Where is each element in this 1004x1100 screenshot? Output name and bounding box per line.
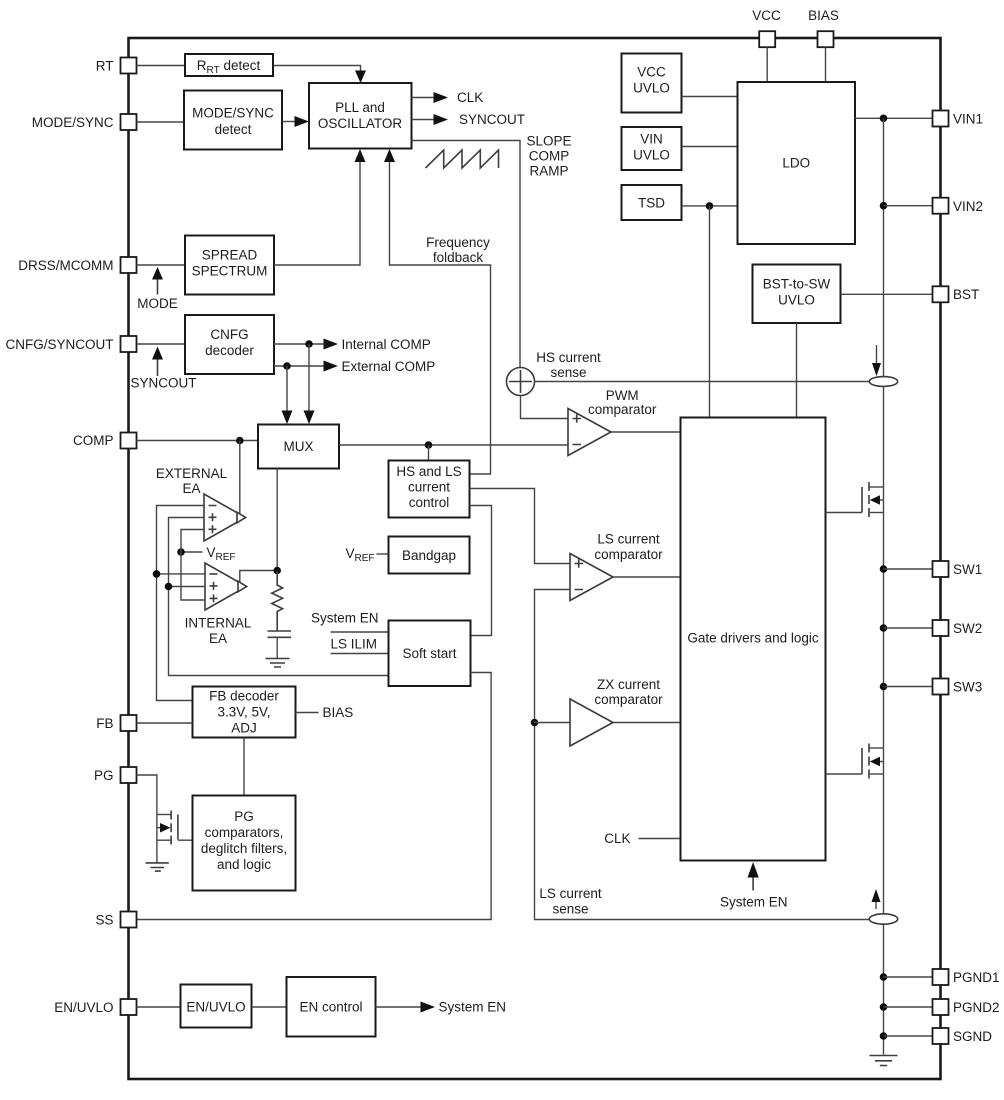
svg-text:PLL and: PLL and: [335, 100, 385, 115]
svg-text:detect: detect: [215, 122, 252, 137]
svg-text:and logic: and logic: [217, 857, 271, 872]
svg-text:BIAS: BIAS: [808, 8, 839, 23]
svg-text:COMP: COMP: [73, 433, 114, 448]
svg-text:ZX current: ZX current: [597, 677, 660, 692]
svg-text:External COMP: External COMP: [342, 359, 436, 374]
svg-text:Internal COMP: Internal COMP: [342, 337, 431, 352]
svg-text:Soft start: Soft start: [402, 646, 456, 661]
svg-text:SLOPE: SLOPE: [526, 134, 571, 149]
svg-text:3.3V, 5V,: 3.3V, 5V,: [217, 705, 270, 720]
svg-text:TSD: TSD: [638, 196, 665, 211]
svg-text:VIN: VIN: [640, 132, 663, 147]
svg-text:comparators,: comparators,: [205, 825, 284, 840]
svg-text:EN/UVLO: EN/UVLO: [54, 1000, 113, 1015]
svg-text:Bandgap: Bandgap: [402, 548, 456, 563]
svg-text:ADJ: ADJ: [231, 721, 257, 736]
svg-text:EXTERNAL: EXTERNAL: [156, 466, 228, 481]
svg-text:SYNCOUT: SYNCOUT: [459, 112, 525, 127]
svg-text:sense: sense: [552, 902, 588, 917]
svg-text:PGND2: PGND2: [953, 1000, 1000, 1015]
svg-text:INTERNAL: INTERNAL: [185, 616, 252, 631]
svg-text:SGND: SGND: [953, 1029, 992, 1044]
svg-text:HS and LS: HS and LS: [396, 464, 461, 479]
svg-text:sense: sense: [550, 365, 586, 380]
svg-text:UVLO: UVLO: [778, 293, 815, 308]
svg-text:decoder: decoder: [205, 343, 254, 358]
svg-text:VIN2: VIN2: [953, 199, 983, 214]
svg-text:RAMP: RAMP: [529, 164, 568, 179]
svg-text:PG: PG: [94, 768, 114, 783]
svg-text:UVLO: UVLO: [633, 148, 670, 163]
svg-text:LS current: LS current: [597, 532, 660, 547]
svg-text:Frequency: Frequency: [426, 235, 490, 250]
svg-text:LS current: LS current: [539, 886, 602, 901]
svg-text:HS current: HS current: [536, 350, 601, 365]
svg-text:current: current: [408, 480, 450, 495]
svg-text:SW2: SW2: [953, 621, 982, 636]
svg-text:PWM: PWM: [606, 388, 639, 403]
svg-text:VREF: VREF: [207, 545, 236, 563]
svg-text:RT: RT: [96, 59, 114, 74]
svg-text:BST-to-SW: BST-to-SW: [763, 277, 831, 292]
svg-text:System EN: System EN: [720, 895, 788, 910]
svg-text:LDO: LDO: [782, 156, 810, 171]
svg-text:LS ILIM: LS ILIM: [331, 637, 378, 652]
svg-text:BST: BST: [953, 287, 979, 302]
svg-text:System EN: System EN: [311, 611, 379, 626]
svg-text:comparator: comparator: [588, 402, 657, 417]
svg-text:VREF: VREF: [346, 546, 375, 564]
svg-text:FB: FB: [96, 716, 113, 731]
svg-text:PGND1: PGND1: [953, 970, 1000, 985]
svg-text:SW3: SW3: [953, 680, 982, 695]
svg-text:VCC: VCC: [637, 65, 666, 80]
svg-text:EN control: EN control: [299, 1000, 362, 1015]
svg-text:SW1: SW1: [953, 562, 982, 577]
svg-text:deglitch filters,: deglitch filters,: [201, 841, 287, 856]
svg-text:OSCILLATOR: OSCILLATOR: [318, 116, 403, 131]
svg-text:foldback: foldback: [433, 250, 484, 265]
svg-text:CLK: CLK: [457, 90, 483, 105]
svg-text:EA: EA: [182, 481, 200, 496]
svg-text:CLK: CLK: [604, 831, 630, 846]
svg-text:PG: PG: [234, 809, 254, 824]
svg-text:MODE: MODE: [137, 296, 178, 311]
svg-text:CNFG: CNFG: [210, 327, 248, 342]
svg-text:FB decoder: FB decoder: [209, 689, 279, 704]
svg-text:CNFG/SYNCOUT: CNFG/SYNCOUT: [6, 337, 114, 352]
svg-text:MODE/SYNC: MODE/SYNC: [32, 115, 114, 130]
svg-text:System EN: System EN: [439, 1000, 507, 1015]
svg-text:MODE/SYNC: MODE/SYNC: [192, 106, 274, 121]
svg-text:EN/UVLO: EN/UVLO: [186, 1000, 245, 1015]
svg-text:SPREAD: SPREAD: [202, 248, 258, 263]
svg-text:BIAS: BIAS: [323, 705, 354, 720]
svg-text:VCC: VCC: [752, 8, 781, 23]
svg-text:comparator: comparator: [594, 692, 663, 707]
svg-text:UVLO: UVLO: [633, 81, 670, 96]
svg-text:SPECTRUM: SPECTRUM: [192, 264, 268, 279]
svg-text:MUX: MUX: [284, 439, 314, 454]
svg-text:Gate drivers and logic: Gate drivers and logic: [687, 631, 819, 646]
svg-text:EA: EA: [209, 631, 227, 646]
svg-text:SYNCOUT: SYNCOUT: [131, 376, 197, 391]
svg-text:VIN1: VIN1: [953, 112, 983, 127]
svg-text:comparator: comparator: [594, 547, 663, 562]
svg-text:control: control: [409, 495, 450, 510]
svg-text:COMP: COMP: [529, 149, 570, 164]
svg-text:SS: SS: [95, 913, 113, 928]
svg-text:DRSS/MCOMM: DRSS/MCOMM: [18, 258, 113, 273]
